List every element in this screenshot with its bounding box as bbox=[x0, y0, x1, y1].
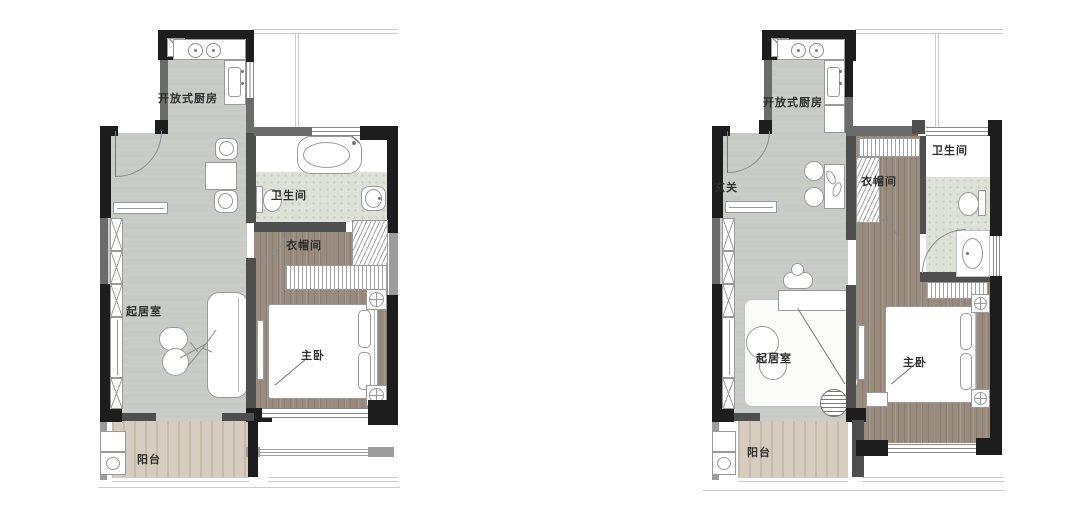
wall-segment bbox=[246, 133, 256, 223]
desk-chair-head bbox=[791, 263, 804, 276]
wall-segment bbox=[846, 285, 856, 408]
wall-segment bbox=[845, 39, 853, 97]
faucet-dot bbox=[839, 70, 842, 73]
kitchen-lower-counter bbox=[824, 105, 845, 133]
storage-shelf bbox=[722, 317, 735, 378]
wall-segment bbox=[100, 218, 108, 284]
room-label-kitchen: 开放式厨房 bbox=[763, 96, 823, 110]
storage-cabinet-x bbox=[722, 378, 735, 409]
toilet-tank bbox=[978, 190, 986, 216]
storage-cabinet-x bbox=[722, 284, 735, 317]
room-label-bedroom: 主卧 bbox=[301, 349, 325, 363]
wall-segment bbox=[254, 127, 312, 136]
room-label-bathroom: 卫生间 bbox=[271, 189, 307, 203]
wall-segment bbox=[368, 447, 394, 457]
room-label-bathroom: 卫生间 bbox=[932, 144, 968, 158]
window-segment bbox=[926, 127, 988, 136]
room-label-balcony: 阳台 bbox=[137, 453, 161, 467]
wall-segment bbox=[846, 126, 918, 136]
balcony-railing bbox=[112, 477, 249, 482]
tv-console bbox=[257, 320, 264, 380]
washing-machine-drum bbox=[717, 457, 731, 470]
storage-cabinet-x bbox=[110, 284, 123, 317]
wall-segment bbox=[846, 133, 856, 240]
stove-burner bbox=[206, 43, 221, 58]
stool-cushion bbox=[219, 141, 234, 156]
context-line bbox=[935, 33, 939, 128]
window-segment bbox=[260, 449, 368, 456]
wall-segment bbox=[988, 120, 1002, 136]
stool-cushion bbox=[218, 193, 233, 209]
desk bbox=[778, 290, 848, 311]
wall-segment bbox=[100, 131, 111, 218]
wardrobe-hatch bbox=[285, 265, 388, 290]
context-line bbox=[703, 490, 1005, 491]
branch-decor bbox=[176, 322, 222, 372]
nightstand-lamp bbox=[366, 289, 387, 310]
pillow bbox=[960, 353, 972, 390]
kitchen-sink-basin bbox=[228, 67, 241, 97]
wall-segment bbox=[389, 233, 398, 295]
wall-segment bbox=[360, 126, 398, 140]
wardrobe-hatch bbox=[856, 157, 880, 223]
wall-segment bbox=[976, 438, 1002, 455]
context-line bbox=[862, 477, 1004, 482]
floor-plan-canvas: 开放式厨房 卫生间 衣帽间 起居室 主卧 阳台 bbox=[0, 0, 1080, 506]
room-label-bedroom: 主卧 bbox=[903, 356, 927, 370]
wall-segment bbox=[734, 413, 760, 421]
wardrobe-hatch bbox=[352, 220, 388, 266]
wall-segment bbox=[387, 295, 398, 408]
wall-segment bbox=[920, 136, 926, 234]
wall-segment bbox=[246, 258, 256, 408]
faucet-dot bbox=[241, 82, 244, 85]
room-label-living: 起居室 bbox=[126, 305, 162, 319]
stove-burner bbox=[188, 43, 203, 58]
room-label-cloakroom: 衣帽间 bbox=[861, 175, 897, 189]
balcony-railing bbox=[738, 477, 848, 482]
context-line bbox=[252, 29, 398, 34]
room-label-kitchen: 开放式厨房 bbox=[158, 92, 218, 106]
room-label-living: 起居室 bbox=[756, 352, 792, 366]
stool bbox=[804, 161, 824, 181]
wall-segment bbox=[990, 136, 1002, 236]
cabinet bbox=[712, 431, 736, 452]
toilet-tank bbox=[256, 186, 263, 213]
context-line bbox=[295, 33, 299, 128]
window-segment bbox=[993, 236, 1000, 276]
faucet-dot bbox=[241, 70, 244, 73]
window-segment bbox=[888, 444, 976, 453]
storage-cabinet-x bbox=[722, 251, 735, 284]
faucet-dot bbox=[839, 82, 842, 85]
nightstand-lamp bbox=[971, 389, 990, 408]
wardrobe-hatch bbox=[858, 138, 920, 157]
entry-console bbox=[725, 201, 777, 213]
wall-segment bbox=[122, 413, 156, 421]
wall-segment bbox=[248, 422, 258, 477]
storage-cabinet-x bbox=[110, 218, 123, 251]
bedroom-bench bbox=[866, 392, 888, 407]
headboard-line bbox=[374, 306, 375, 397]
stool bbox=[804, 187, 824, 207]
wall-segment bbox=[712, 218, 720, 284]
room-label-entry: 玄关 bbox=[714, 181, 738, 195]
cabinet bbox=[100, 431, 126, 452]
balcony-floor bbox=[112, 421, 249, 477]
toilet-bowl bbox=[958, 192, 979, 216]
storage-cabinet-x bbox=[110, 251, 123, 284]
dining-table bbox=[205, 162, 237, 190]
wall-segment bbox=[246, 39, 254, 62]
context-line bbox=[268, 477, 398, 482]
striped-ottoman bbox=[820, 389, 848, 417]
faucet-dot bbox=[378, 197, 381, 200]
wall-segment bbox=[912, 120, 925, 134]
wall-segment bbox=[712, 408, 734, 422]
nightstand-lamp bbox=[971, 294, 990, 313]
headboard-line bbox=[975, 308, 976, 401]
wall-segment bbox=[856, 440, 888, 456]
tv-console bbox=[858, 325, 865, 380]
room-label-balcony: 阳台 bbox=[747, 446, 771, 460]
pillow bbox=[358, 310, 371, 348]
storage-cabinet-x bbox=[722, 218, 735, 251]
context-line bbox=[855, 29, 1003, 34]
wall-segment bbox=[712, 131, 723, 218]
pillow bbox=[960, 313, 972, 350]
storage-cabinet-x bbox=[110, 378, 123, 409]
storage-shelf bbox=[110, 317, 123, 378]
entry-console bbox=[113, 202, 168, 214]
wall-segment bbox=[100, 408, 122, 422]
wall-segment bbox=[387, 140, 398, 233]
stove-burner bbox=[809, 43, 824, 58]
faucet-dot bbox=[966, 252, 969, 255]
wall-segment bbox=[254, 222, 346, 232]
window-segment bbox=[312, 127, 360, 136]
window-segment bbox=[262, 408, 368, 418]
bathtub-faucet bbox=[352, 141, 356, 145]
wall-segment bbox=[368, 400, 398, 425]
window-segment bbox=[246, 62, 254, 98]
washing-machine-drum bbox=[106, 457, 120, 470]
context-line bbox=[98, 487, 400, 488]
room-label-cloakroom: 衣帽间 bbox=[286, 239, 322, 253]
sofa-back-line bbox=[238, 298, 239, 392]
wall-segment bbox=[990, 276, 1002, 443]
wall-segment bbox=[246, 98, 254, 133]
wall-segment bbox=[222, 413, 254, 421]
stove-burner bbox=[791, 43, 806, 58]
bathtub-basin bbox=[303, 142, 350, 168]
